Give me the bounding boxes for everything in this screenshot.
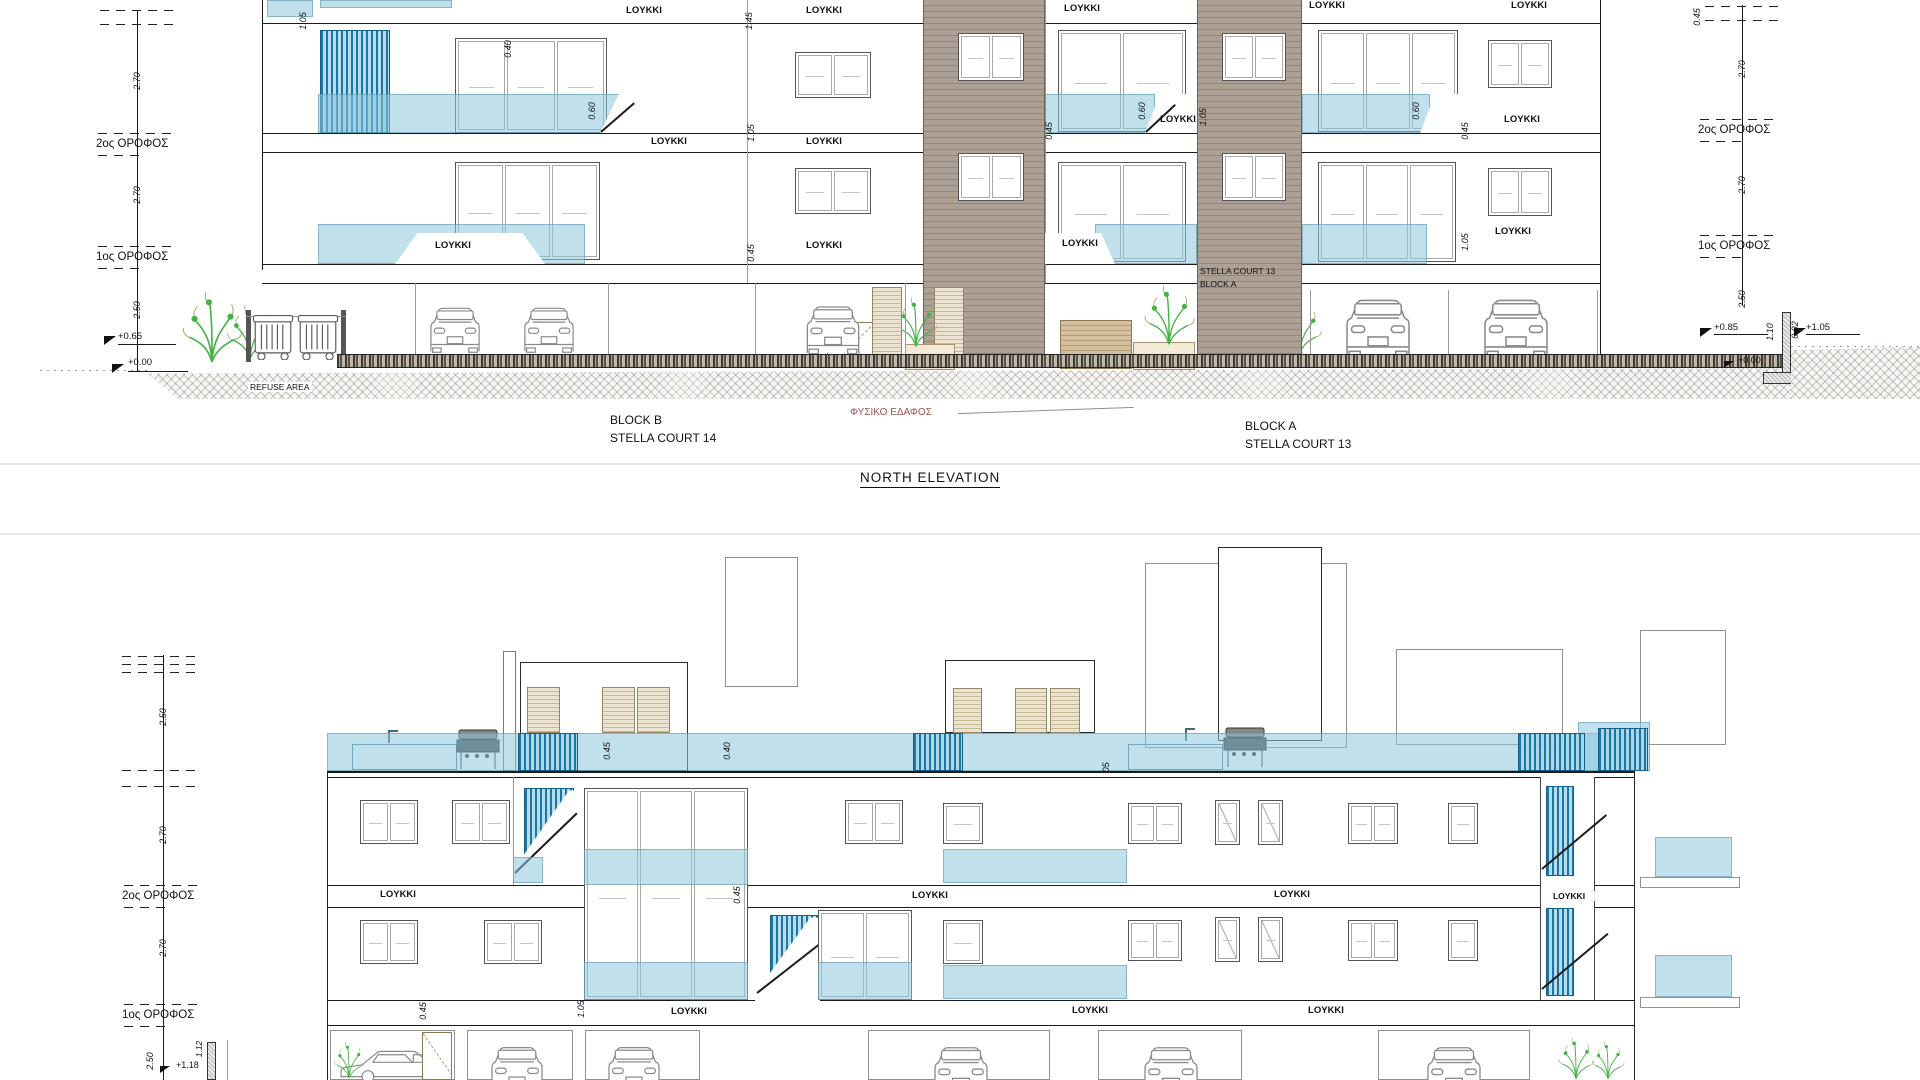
side-balcony-slab (1640, 877, 1740, 888)
dim-label: 2.70 (158, 926, 168, 970)
tilt-window (1215, 800, 1240, 845)
datum-line (1791, 346, 1920, 347)
dim-label: 1.45 (744, 0, 754, 43)
casement-window (1128, 920, 1182, 961)
car-icon (518, 302, 580, 356)
car-icon (925, 1044, 997, 1080)
block-a-court-label: STELLA COURT 13 (1245, 437, 1351, 451)
dim-label: 2.70 (158, 813, 168, 857)
block-a-label: BLOCK A (1245, 419, 1296, 433)
pillar (608, 283, 609, 355)
dim-label: 2.70 (1737, 47, 1747, 91)
level-dash (98, 155, 144, 156)
loykki-label: LOYKKI (1267, 889, 1317, 900)
slab-line (327, 885, 1635, 886)
loykki-label: LOYKKI (799, 5, 849, 16)
dim-label: 0.45 (1044, 109, 1054, 153)
building-sign: BLOCK A (1200, 279, 1236, 289)
level-dash (122, 672, 202, 673)
balcony-glass (513, 857, 543, 883)
pillar (415, 283, 416, 355)
floor1-label: 1ος ΟΡΟΦΟΣ (1698, 240, 1770, 252)
floor2-label: 2ος ΟΡΟΦΟΣ (96, 138, 168, 150)
car-icon (800, 302, 866, 356)
level-line (1806, 334, 1860, 335)
louver-shutter (637, 687, 670, 733)
dim-label: 0.45 (418, 989, 428, 1033)
slab-line (327, 1025, 1635, 1026)
block-b-label: BLOCK B (610, 413, 662, 427)
building-sign: STELLA COURT 13 (1200, 266, 1275, 276)
pillar (1597, 290, 1598, 356)
dim-label: 1.10 (1765, 310, 1775, 354)
wall-edge (227, 1040, 228, 1080)
casement-window (1348, 803, 1398, 844)
dim-label: 1.05 (576, 987, 586, 1031)
dim-label: 0.60 (1137, 89, 1147, 133)
natural-ground-label: ΦΥΣΙΚΟ ΕΔΑΦΟΣ (850, 407, 932, 418)
drawing-title: NORTH ELEVATION (860, 470, 1000, 488)
level-dash (122, 786, 202, 787)
floor2-label: 2ος ΟΡΟΦΟΣ (1698, 124, 1770, 136)
loykki-label: LOYKKI (905, 890, 955, 901)
casement-window (958, 153, 1024, 201)
casement-window (360, 920, 418, 964)
car-icon (1418, 1044, 1490, 1080)
loykki-label: LOYKKI (373, 889, 423, 900)
level-dash (100, 24, 176, 25)
casement-window (1128, 803, 1182, 844)
casement-window (943, 920, 983, 964)
loykki-label: LOYKKI (1302, 0, 1352, 11)
dim-label: 0.45 (1460, 109, 1470, 153)
bin-icon (252, 312, 294, 360)
beam-notch (1480, 233, 1550, 264)
car-icon (600, 1044, 668, 1080)
dim-label: 2.70 (1737, 163, 1747, 207)
casement-window (1488, 168, 1552, 216)
level-dash (124, 1004, 202, 1005)
loykki-label: LOYKKI (799, 240, 849, 251)
side-balcony-glass (1655, 955, 1732, 997)
balcony-glass (818, 962, 912, 1000)
level-dash (1700, 141, 1746, 142)
level-dash (1705, 6, 1779, 7)
balcony-glass (584, 962, 748, 1000)
floor2-label: 2ος ΟΡΟΦΟΣ (122, 890, 194, 902)
earth-hatch (1791, 347, 1920, 399)
level-value: +0.65 (118, 331, 142, 342)
level-dash (100, 10, 176, 11)
retaining-wall (207, 1042, 216, 1080)
loykki-label: LOYKKI (1301, 1005, 1351, 1016)
car-icon (1338, 296, 1418, 358)
earth-hatch (148, 368, 1791, 399)
level-marker-icon (104, 336, 116, 345)
level-dash (1700, 257, 1746, 258)
roof-volume (725, 557, 798, 687)
level-line (128, 371, 188, 372)
loykki-label: LOYKKI (1153, 114, 1203, 125)
separator-line (0, 533, 1920, 535)
loykki-label: LOYKKI (1488, 226, 1538, 237)
level-dash (124, 907, 170, 908)
loykki-label: LOYKKI (664, 1006, 714, 1017)
casement-window (795, 52, 871, 98)
slab-line (327, 1000, 1635, 1001)
plant-icon (1588, 1040, 1628, 1080)
level-line (118, 344, 176, 345)
parapet-railing (913, 733, 963, 771)
leader-line (958, 407, 1134, 414)
tilt-window (1258, 800, 1283, 845)
balcony-glass (1302, 224, 1427, 264)
dim-label: 0.45 (602, 729, 612, 773)
casement-window (484, 920, 542, 964)
casement-window (1222, 153, 1286, 201)
casement-window (1448, 803, 1478, 844)
tilt-window (1215, 917, 1240, 962)
plant-icon (1140, 284, 1198, 346)
balcony-glass (943, 849, 1127, 883)
dim-label: 0.40 (722, 729, 732, 773)
loykki-label: LOYKKI (644, 136, 694, 147)
roof-volume (1640, 630, 1726, 745)
block-b-court-label: STELLA COURT 14 (610, 431, 716, 445)
dim-label: 2.50 (145, 1039, 155, 1080)
balcony-glass (318, 94, 650, 133)
dim-label: 0.45 (746, 231, 756, 275)
gravel-strip (337, 354, 1783, 368)
separator-line (0, 463, 1920, 465)
datum-line (40, 370, 150, 371)
bin-icon (297, 312, 339, 360)
entrance-door (422, 1032, 452, 1080)
parapet-railing (1598, 728, 1648, 771)
dim-label: 0.60 (1411, 89, 1421, 133)
floor1-label: 1ος ΟΡΟΦΟΣ (122, 1009, 194, 1021)
level-line (1714, 334, 1768, 335)
louver-shutter (1015, 688, 1047, 733)
building-edge (1600, 0, 1601, 362)
dim-label: 0.60 (587, 89, 597, 133)
casement-window (795, 168, 871, 214)
level-dash (122, 656, 202, 657)
dim-label: 1.05 (298, 0, 308, 43)
level-dash (1705, 20, 1779, 21)
side-balcony-glass (1655, 837, 1732, 877)
loykki-label: LOYKKI (1504, 0, 1554, 11)
louver-shutter (527, 687, 560, 733)
level-value: +0.85 (1714, 322, 1738, 333)
loykki-label: LOYKKI (1055, 238, 1105, 249)
stair-bulkhead (1218, 547, 1322, 741)
dim-label: 2.50 (1737, 277, 1747, 321)
pillar (1448, 290, 1449, 356)
elevation-sheet: 2.70 2ος ΟΡΟΦΟΣ 2.70 1ος ΟΡΟΦΟΣ 2.50 +0.… (0, 0, 1920, 1080)
level-marker-icon (1794, 328, 1806, 337)
roof-volume (1396, 649, 1563, 745)
loykki-label: LOYKKI (1497, 114, 1547, 125)
level-marker-icon (1700, 328, 1712, 337)
balcony-glass (320, 0, 452, 8)
dim-label: 1.05 (746, 111, 756, 155)
casement-window (360, 800, 418, 844)
level-dash (124, 1026, 170, 1027)
dim-label: 1.05 (1460, 220, 1470, 264)
dim-label: 0.40 (503, 27, 513, 71)
loykki-label: LOYKKI (619, 5, 669, 16)
louver-shutter (1050, 688, 1080, 733)
casement-window (1222, 33, 1286, 81)
car-icon (483, 1044, 551, 1080)
dim-label: 2.50 (158, 695, 168, 739)
dim-label: 2.70 (132, 59, 142, 103)
level-marker-icon (112, 364, 124, 373)
louver-shutter (602, 687, 635, 733)
dim-label: 2.70 (132, 173, 142, 217)
louver-shutter (953, 688, 982, 733)
roof-slab-line (327, 771, 1635, 773)
side-balcony-slab (1640, 997, 1740, 1008)
casement-window (943, 803, 983, 844)
dim-label: 2.50 (132, 288, 142, 332)
loykki-label: LOYKKI (428, 240, 478, 251)
level-dash (1700, 119, 1778, 120)
tilt-window (1258, 917, 1283, 962)
building-edge (262, 0, 263, 270)
loykki-label: LOYKKI (1057, 3, 1107, 14)
level-dash (1700, 235, 1778, 236)
level-dash (98, 246, 176, 247)
loykki-label: LOYKKI (1065, 1005, 1115, 1016)
pillar (1310, 290, 1311, 356)
car-icon (424, 302, 486, 356)
parapet-railing (1518, 733, 1585, 771)
balcony-glass (584, 849, 748, 885)
pillar (905, 283, 906, 355)
dim-label: 0.45 (1692, 0, 1702, 39)
level-dash (98, 268, 144, 269)
level-marker-icon (160, 1066, 170, 1073)
casement-window (1488, 40, 1552, 88)
loykki-label: LOYKKI (799, 136, 849, 147)
bin-post (246, 310, 251, 362)
level-value: +1.05 (1806, 322, 1830, 333)
car-icon (1476, 296, 1556, 358)
level-dash (122, 770, 202, 771)
casement-window (1448, 920, 1478, 961)
level-dash (122, 664, 202, 665)
bay-edge (513, 777, 514, 885)
louver-panel (872, 287, 902, 355)
casement-window (958, 33, 1024, 81)
car-icon (1135, 1044, 1207, 1080)
door-glass-line (423, 1033, 452, 1079)
loykki-label: LOYKKI (1543, 891, 1595, 901)
level-dash (98, 133, 176, 134)
level-value: +0.00 (1738, 355, 1761, 365)
roof-slab-line (327, 777, 1635, 778)
refuse-area-label: REFUSE AREA (248, 382, 312, 392)
floor1-label: 1ος ΟΡΟΦΟΣ (96, 251, 168, 263)
dim-label: 0.45 (732, 873, 742, 917)
casement-window (1348, 920, 1398, 961)
dim-label: 1.12 (194, 1027, 204, 1071)
plant-icon (333, 1040, 365, 1080)
casement-window (452, 800, 510, 844)
parapet-railing (518, 733, 578, 771)
casement-window (845, 800, 903, 844)
pillar (755, 283, 756, 355)
level-dash (124, 885, 202, 886)
balcony-glass (943, 965, 1127, 999)
level-value: +0.00 (128, 357, 152, 368)
level-marker-icon (1724, 361, 1734, 368)
slab-line (327, 907, 1635, 908)
